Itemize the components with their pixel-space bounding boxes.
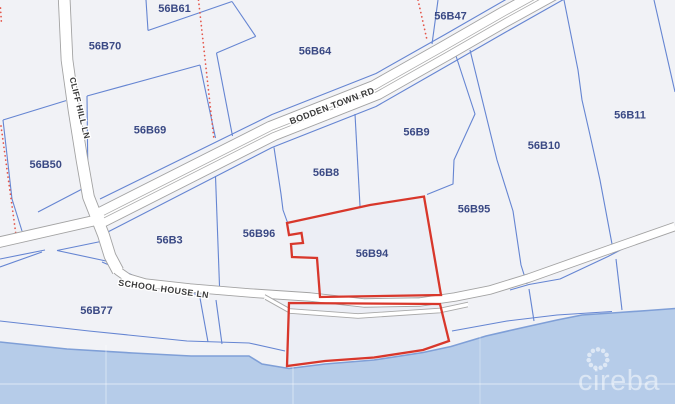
svg-text:56B70: 56B70 [89, 41, 121, 53]
svg-text:56B64: 56B64 [299, 46, 332, 58]
svg-text:56B77: 56B77 [80, 305, 112, 317]
svg-text:56B50: 56B50 [29, 159, 61, 171]
svg-text:56B96: 56B96 [243, 228, 275, 240]
svg-text:56B69: 56B69 [134, 125, 166, 137]
svg-text:56B94: 56B94 [356, 248, 389, 260]
svg-text:56B61: 56B61 [158, 3, 190, 15]
svg-text:56B3: 56B3 [156, 235, 182, 247]
svg-text:56B11: 56B11 [614, 110, 646, 122]
svg-text:56B47: 56B47 [434, 11, 466, 23]
svg-text:56B95: 56B95 [458, 204, 490, 216]
svg-text:cireba: cireba [578, 365, 660, 397]
svg-text:56B9: 56B9 [403, 127, 429, 139]
svg-text:56B10: 56B10 [528, 140, 560, 152]
svg-text:56B8: 56B8 [313, 167, 339, 179]
